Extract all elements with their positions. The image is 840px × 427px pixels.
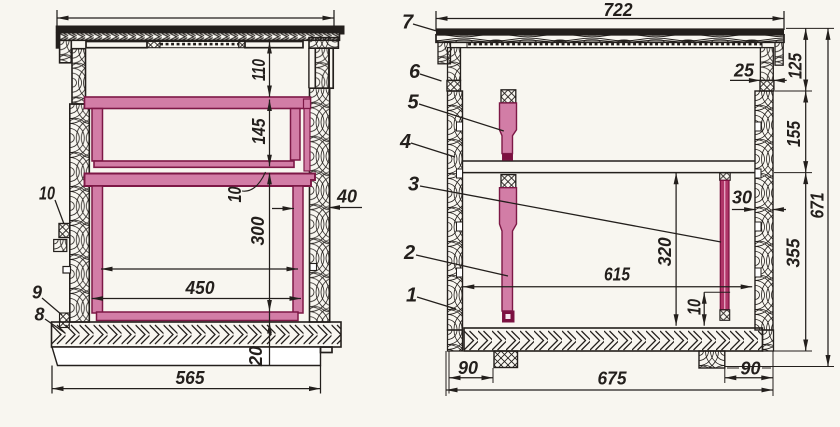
svg-text:3: 3 (408, 174, 419, 196)
svg-text:10: 10 (225, 187, 245, 203)
svg-text:671: 671 (807, 193, 827, 219)
svg-text:320: 320 (655, 237, 675, 266)
svg-text:355: 355 (783, 238, 803, 268)
svg-text:20: 20 (246, 346, 266, 367)
svg-text:110: 110 (249, 59, 269, 81)
svg-text:300: 300 (248, 217, 268, 246)
svg-text:1: 1 (406, 285, 417, 307)
svg-text:90: 90 (741, 358, 761, 378)
svg-text:90: 90 (458, 358, 478, 378)
svg-text:30: 30 (732, 187, 752, 207)
svg-text:450: 450 (185, 278, 215, 298)
svg-text:722: 722 (604, 0, 633, 20)
svg-text:9: 9 (32, 282, 42, 302)
svg-text:7: 7 (402, 12, 414, 34)
svg-text:675: 675 (598, 368, 628, 388)
svg-text:40: 40 (336, 186, 357, 206)
svg-text:145: 145 (249, 118, 269, 145)
svg-text:10: 10 (684, 299, 704, 315)
svg-text:565: 565 (176, 368, 206, 388)
svg-text:8: 8 (34, 304, 44, 324)
svg-text:25: 25 (733, 60, 755, 80)
svg-text:125: 125 (785, 52, 805, 79)
svg-text:155: 155 (784, 120, 804, 147)
svg-text:10: 10 (39, 183, 55, 203)
svg-text:615: 615 (604, 264, 631, 284)
svg-text:4: 4 (399, 131, 411, 153)
svg-text:2: 2 (403, 242, 415, 264)
svg-text:6: 6 (409, 61, 421, 83)
svg-text:5: 5 (407, 92, 419, 114)
